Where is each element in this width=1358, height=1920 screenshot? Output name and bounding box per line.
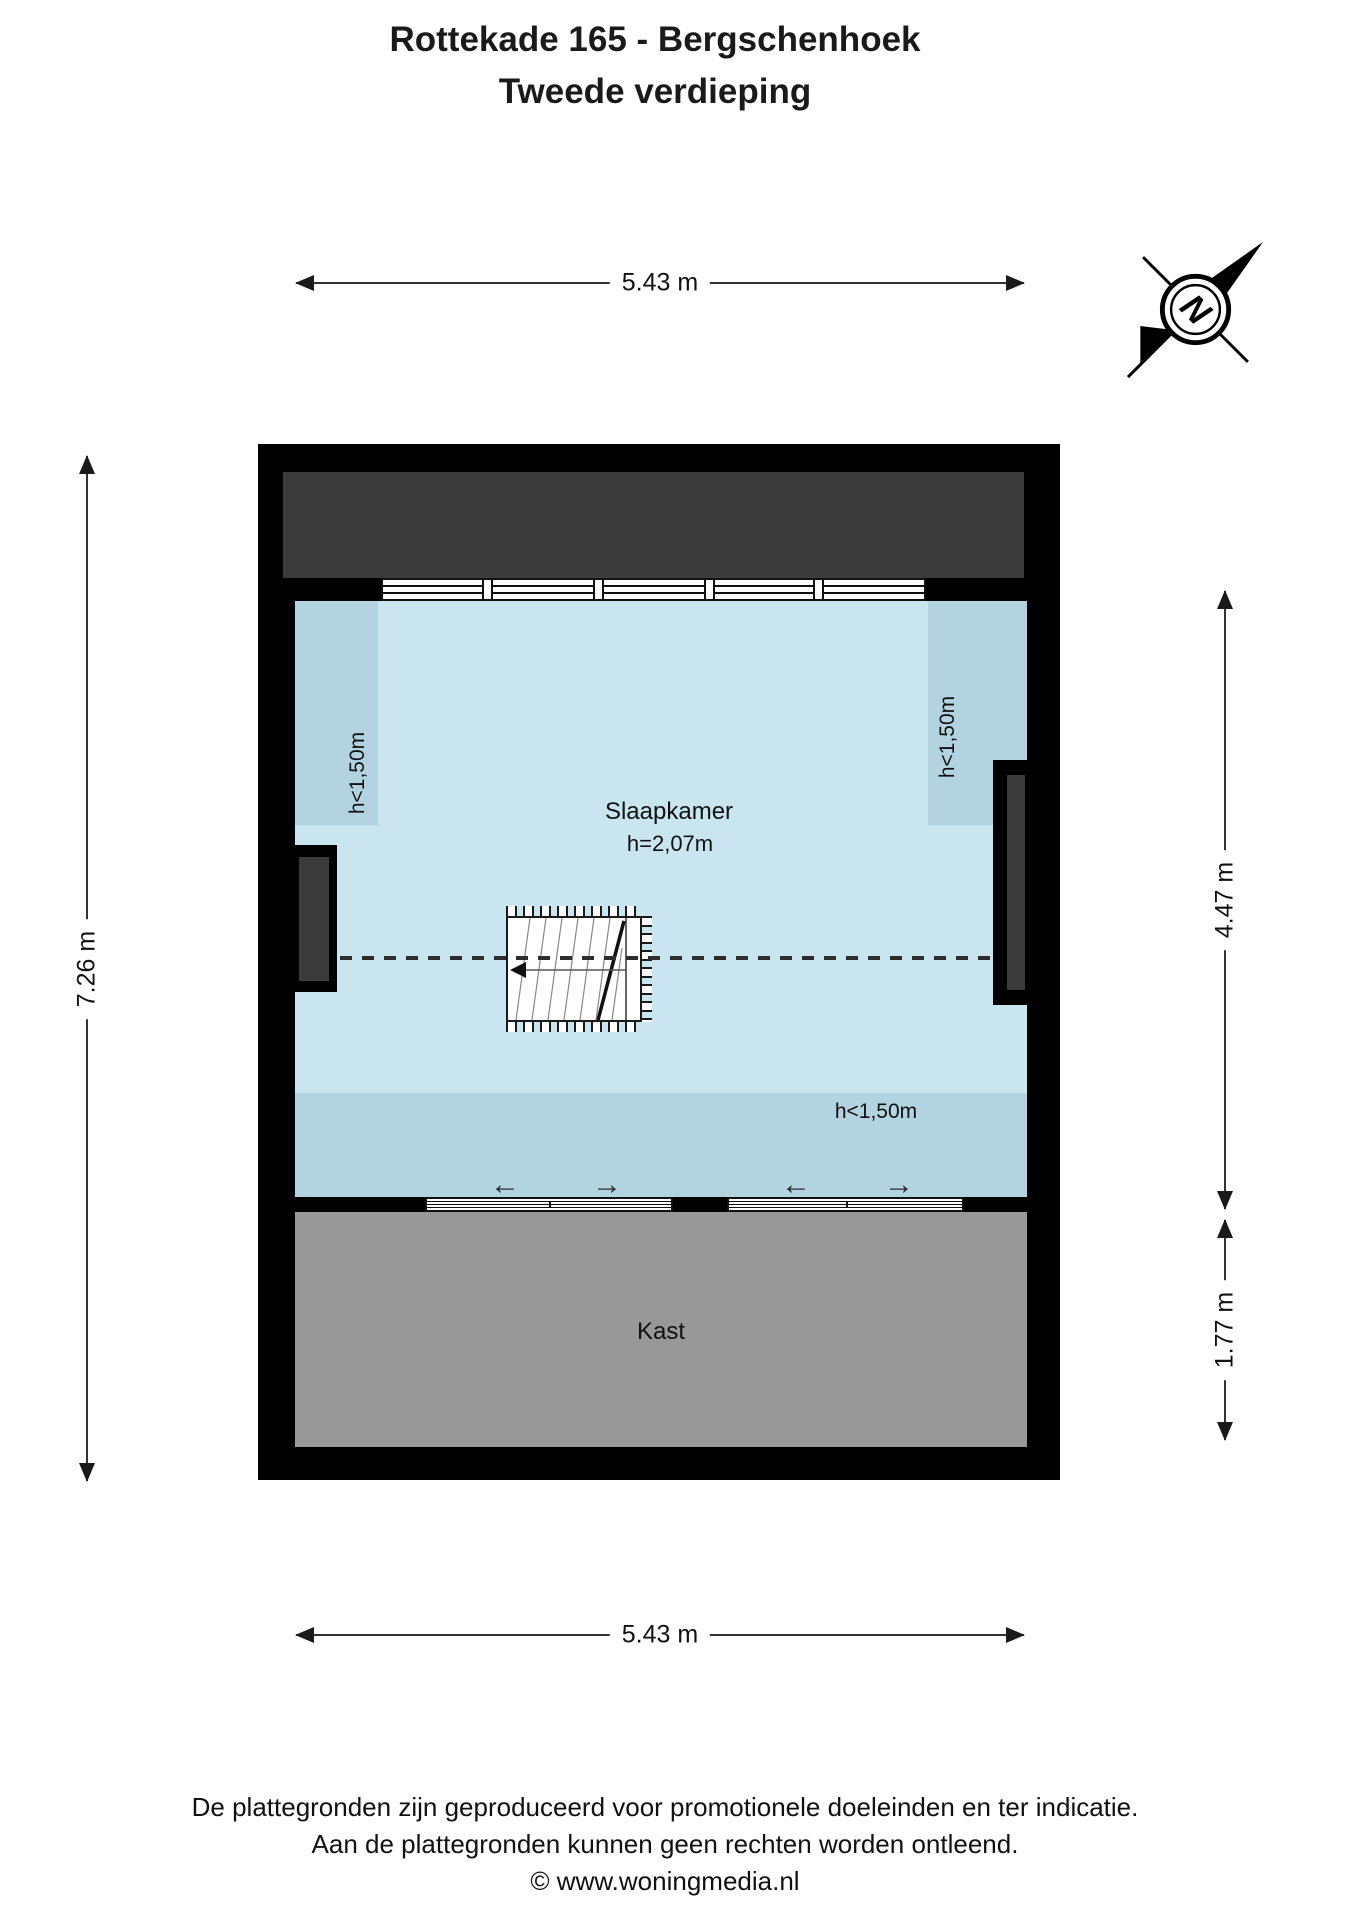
dimension-bottom-label: 5.43 m — [610, 1621, 710, 1650]
staircase — [506, 916, 642, 1022]
dimension-top-label: 5.43 m — [610, 269, 710, 298]
window-mullion — [549, 1202, 551, 1208]
arrowhead-right-icon — [1006, 275, 1025, 291]
dimension-top: 5.43 m — [296, 275, 1024, 291]
staircase-teeth-top — [506, 906, 642, 916]
roof-area-top — [283, 472, 1024, 578]
window-mullion — [846, 1202, 848, 1208]
staircase-teeth-right — [642, 916, 652, 1022]
arrowhead-left-icon — [295, 1627, 314, 1643]
window-mullion — [593, 578, 604, 601]
low-height-zone-bottom — [295, 1093, 1027, 1197]
arrowhead-down-icon — [1217, 1422, 1233, 1441]
slide-arrow-right-icon: → — [592, 1168, 622, 1202]
footer-disclaimer-line2: Aan de plattegronden kunnen geen rechten… — [0, 1826, 1330, 1863]
dimension-left: 7.26 m — [79, 456, 95, 1481]
window-top — [381, 578, 926, 601]
arrowhead-down-icon — [1217, 1191, 1233, 1210]
window-bottom-right — [727, 1197, 964, 1212]
chimney-right-core — [1007, 775, 1025, 990]
dimension-right-lower-label: 1.77 m — [1211, 1280, 1240, 1380]
window-mullion — [813, 578, 824, 601]
slide-arrow-left-icon: ← — [781, 1168, 811, 1202]
slide-arrow-left-icon: ← — [490, 1168, 520, 1202]
room-label-kast: Kast — [637, 1318, 685, 1346]
footer: De plattegronden zijn geproduceerd voor … — [0, 1789, 1330, 1900]
compass-north-icon: N — [1098, 212, 1293, 407]
slide-arrow-right-icon: → — [884, 1168, 914, 1202]
arrowhead-up-icon — [1217, 1219, 1233, 1238]
dimension-right-lower: 1.77 m — [1217, 1220, 1233, 1440]
arrowhead-up-icon — [79, 455, 95, 474]
chimney-left-core — [299, 857, 329, 981]
headroom-dashed-line — [340, 956, 990, 960]
footer-disclaimer-line1: De plattegronden zijn geproduceerd voor … — [0, 1789, 1330, 1826]
staircase-symbol — [508, 918, 640, 1020]
floorplan: Slaapkamer h=2,07m h<1,50m h<1,50m h<1,5… — [258, 444, 1060, 1480]
chimney-right — [993, 760, 1027, 1005]
arrowhead-left-icon — [295, 275, 314, 291]
low-height-label-bottom: h<1,50m — [835, 1100, 917, 1124]
arrowhead-right-icon — [1006, 1627, 1025, 1643]
dimension-left-label: 7.26 m — [73, 918, 102, 1018]
page-header: Rottekade 165 - Bergschenhoek Tweede ver… — [0, 14, 1310, 118]
low-height-label-left: h<1,50m — [346, 732, 370, 814]
page-title: Rottekade 165 - Bergschenhoek — [0, 14, 1310, 66]
room-label-slaapkamer: Slaapkamer — [605, 798, 733, 826]
chimney-left — [295, 845, 337, 992]
dimension-bottom: 5.43 m — [296, 1627, 1024, 1643]
low-height-label-right: h<1,50m — [936, 696, 960, 778]
floorplan-page: Rottekade 165 - Bergschenhoek Tweede ver… — [0, 0, 1358, 1920]
dimension-right-upper-label: 4.47 m — [1211, 850, 1240, 950]
window-mullion — [482, 578, 493, 601]
dimension-right-upper: 4.47 m — [1217, 591, 1233, 1209]
window-mullion — [704, 578, 715, 601]
footer-copyright: © www.woningmedia.nl — [0, 1863, 1330, 1900]
window-bottom-left — [425, 1197, 673, 1212]
page-subtitle: Tweede verdieping — [0, 66, 1310, 118]
arrowhead-down-icon — [79, 1463, 95, 1482]
arrowhead-up-icon — [1217, 590, 1233, 609]
room-height-label: h=2,07m — [627, 831, 713, 857]
